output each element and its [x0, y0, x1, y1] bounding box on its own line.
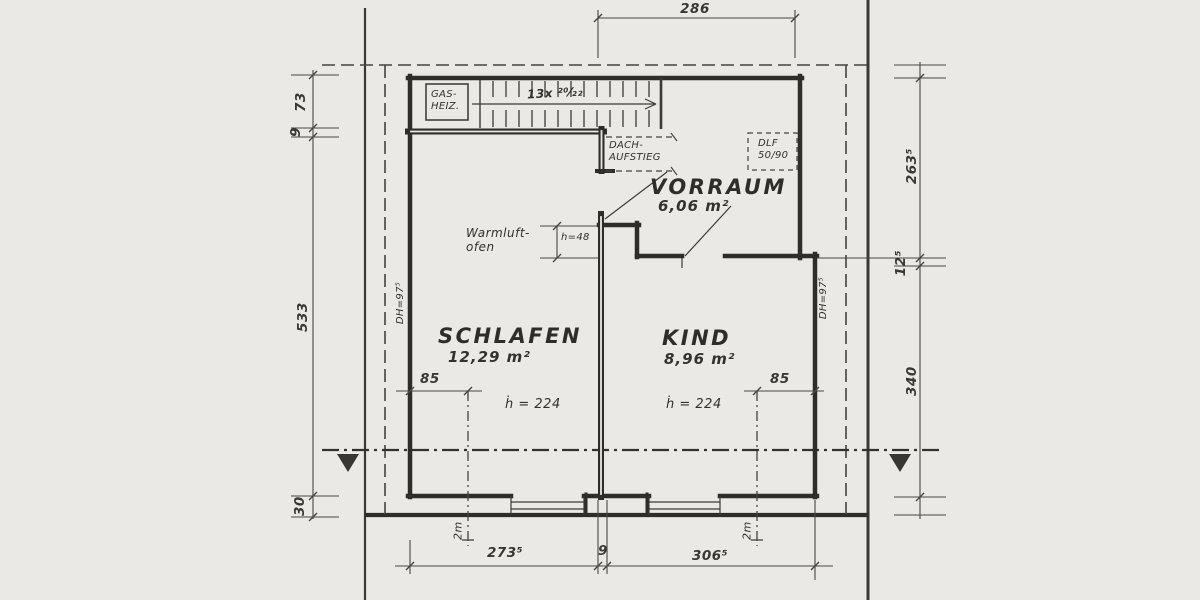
- dim-2m-left: 2m: [451, 511, 464, 551]
- double-walls: [408, 129, 613, 497]
- door-height-label-left: DH=97⁵: [395, 267, 407, 339]
- room-name-schlafen: SCHLAFEN: [438, 324, 582, 349]
- dach-aufstieg-label: DACH- AUFSTIEG: [609, 140, 661, 164]
- floor-plan-scan: 286 GAS- HEIZ. 13x ²⁰⁄₂₂ DACH- AUFSTIEG …: [0, 0, 1200, 600]
- room-area-vorraum: 6,06 m²: [658, 197, 729, 215]
- dim-left-30: 30: [292, 486, 308, 526]
- section-line: [322, 450, 940, 472]
- section-marker-right: [889, 454, 911, 472]
- roof-window-line1: DLF: [758, 138, 788, 150]
- room-area-kind: 8,96 m²: [664, 350, 735, 368]
- roof-window-line2: 50/90: [758, 150, 788, 162]
- windows: [511, 496, 720, 515]
- dim-bottom-273: 273⁵: [470, 545, 540, 561]
- dim-bottom-9: 9: [588, 543, 618, 559]
- ofen-height-label: h=48: [561, 232, 590, 244]
- warmluftofen-line1: Warmluft-: [466, 226, 530, 240]
- dim-right-340: 340: [904, 351, 920, 411]
- dach-aufstieg-line2: AUFSTIEG: [609, 152, 661, 164]
- dim-left-533: 533: [295, 297, 311, 337]
- door-dim-schlafen: 85: [420, 371, 440, 387]
- floor-plan-drawing: [0, 0, 1200, 600]
- dach-aufstieg-line1: DACH-: [609, 140, 661, 152]
- room-name-kind: KIND: [662, 326, 731, 351]
- dim-left-9: 9: [288, 112, 304, 152]
- door-height-label-right: DH=97⁵: [818, 262, 830, 334]
- warmluftofen-label: Warmluft- ofen: [466, 226, 530, 255]
- warmluftofen-line2: ofen: [466, 240, 530, 254]
- gas-heater-label: GAS- HEIZ.: [431, 89, 459, 113]
- dim-bottom-306: 306⁵: [675, 548, 745, 564]
- two-meter-lines: [462, 391, 763, 546]
- top-dim-label: 286: [655, 1, 735, 17]
- room-area-schlafen: 12,29 m²: [448, 348, 531, 366]
- dim-2m-right: 2m: [740, 511, 753, 551]
- door-dim-kind: 85: [770, 371, 790, 387]
- dim-right-12: 12⁵: [893, 238, 909, 288]
- room-height-schlafen: ḣ = 224: [505, 397, 561, 413]
- roof-window-label: DLF 50/90: [758, 138, 788, 162]
- section-marker-left: [337, 454, 359, 472]
- stair-walk-line: [472, 99, 656, 109]
- stairs-label: 13x ²⁰⁄₂₂: [527, 85, 584, 102]
- room-height-kind: ḣ = 224: [666, 397, 722, 413]
- gas-heater-label-line2: HEIZ.: [431, 101, 459, 113]
- gas-heater-label-line1: GAS-: [431, 89, 459, 101]
- dim-right-263: 263⁵: [904, 136, 920, 196]
